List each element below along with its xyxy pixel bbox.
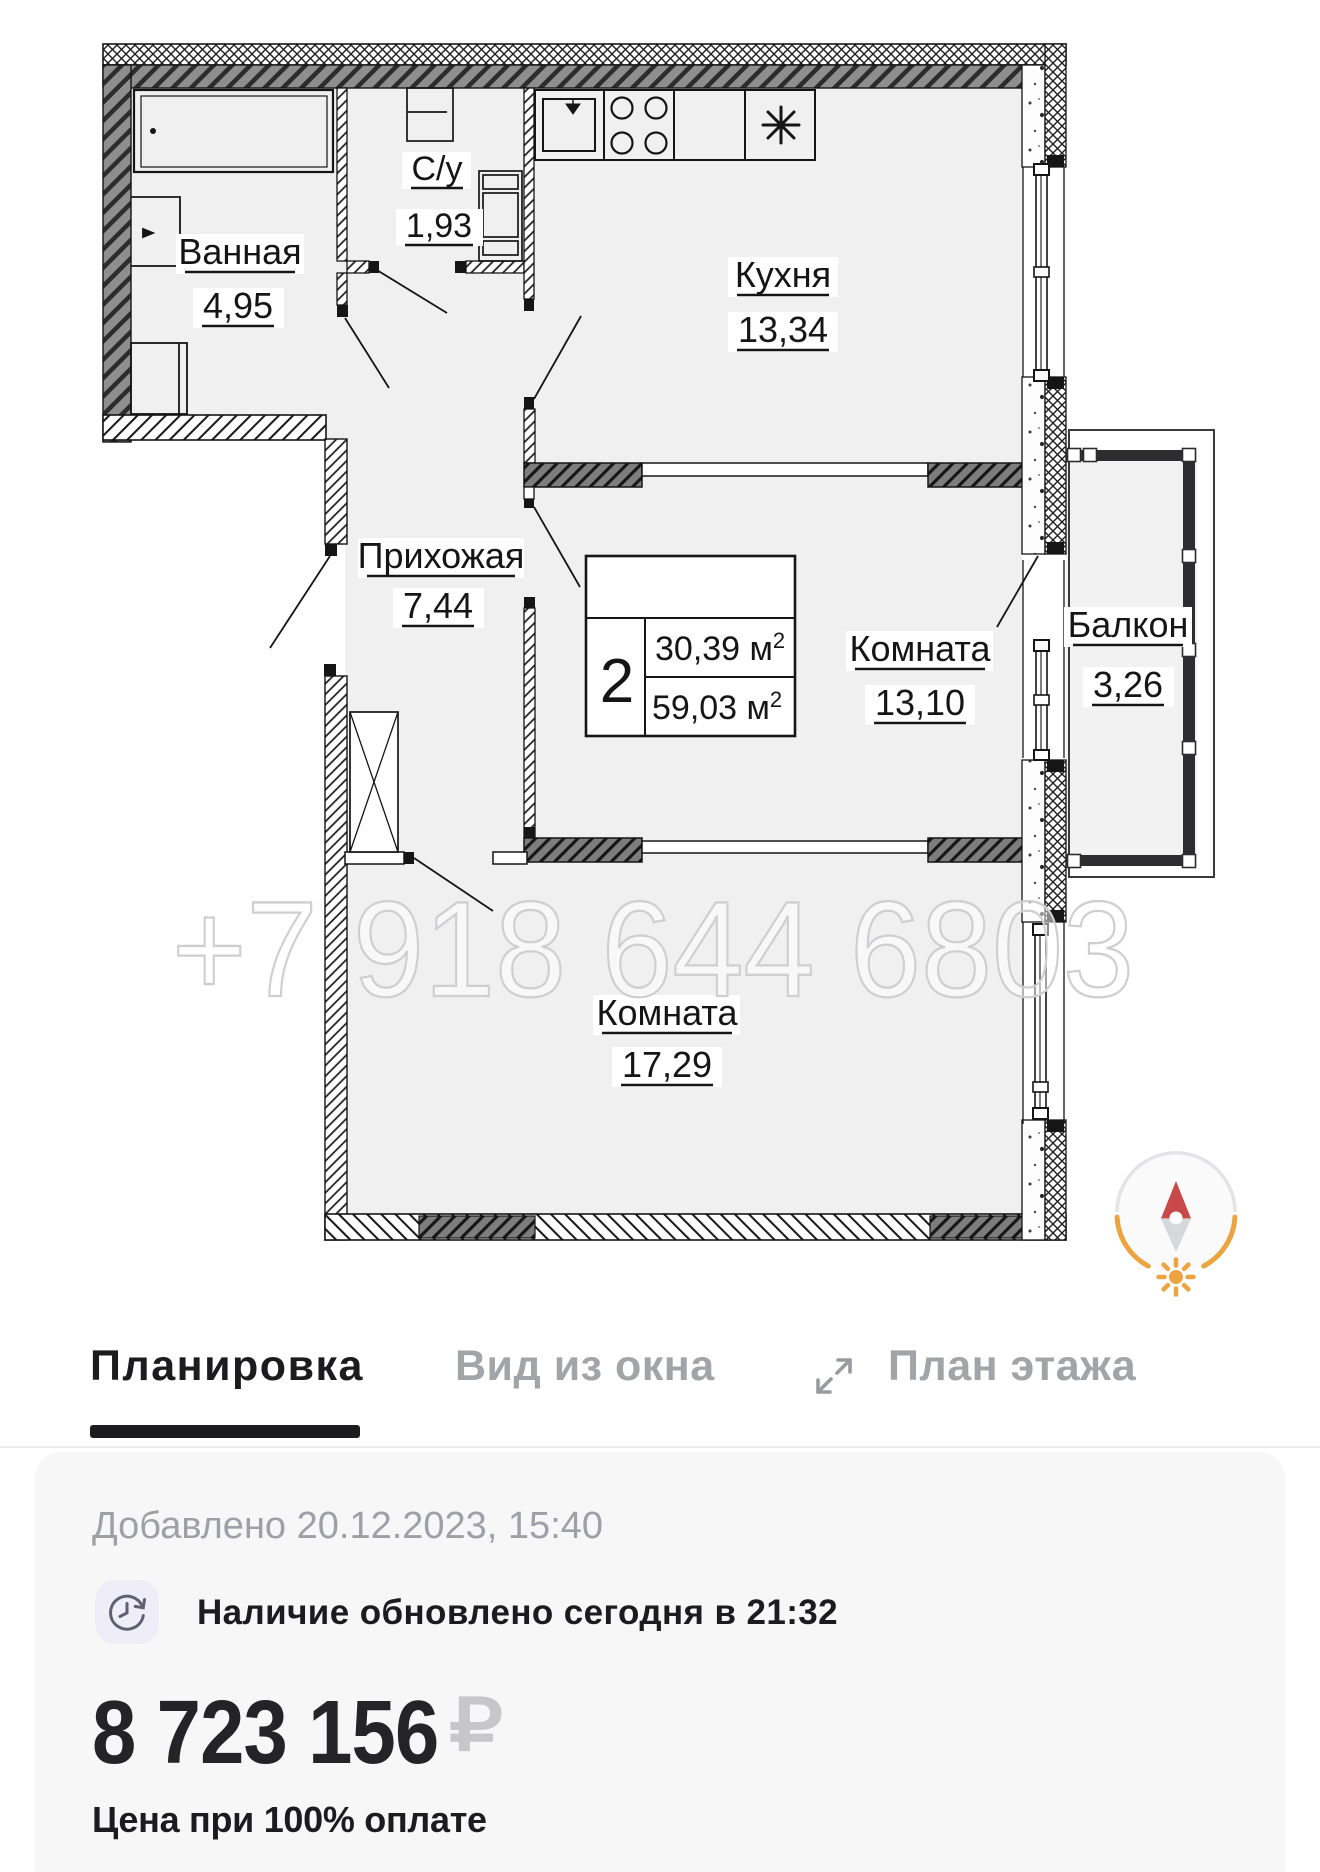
svg-text:Кухня: Кухня [735, 254, 831, 295]
svg-text:7,44: 7,44 [403, 585, 473, 626]
svg-text:Комната: Комната [850, 628, 992, 669]
svg-text:4,95: 4,95 [203, 285, 273, 326]
svg-text:2: 2 [600, 647, 634, 716]
svg-text:30,39 м2: 30,39 м2 [655, 628, 785, 668]
svg-text:17,29: 17,29 [622, 1044, 712, 1085]
svg-text:+7 918 644 6803: +7 918 644 6803 [172, 873, 1134, 1025]
svg-text:59,03 м2: 59,03 м2 [652, 687, 782, 727]
svg-text:Балкон: Балкон [1068, 604, 1189, 645]
svg-text:Прихожая: Прихожая [358, 535, 525, 576]
svg-text:1,93: 1,93 [406, 207, 472, 245]
svg-text:13,34: 13,34 [738, 309, 828, 350]
svg-text:Ванная: Ванная [178, 231, 301, 272]
svg-text:С/у: С/у [412, 150, 463, 188]
svg-text:13,10: 13,10 [875, 682, 965, 723]
svg-text:3,26: 3,26 [1093, 664, 1163, 705]
